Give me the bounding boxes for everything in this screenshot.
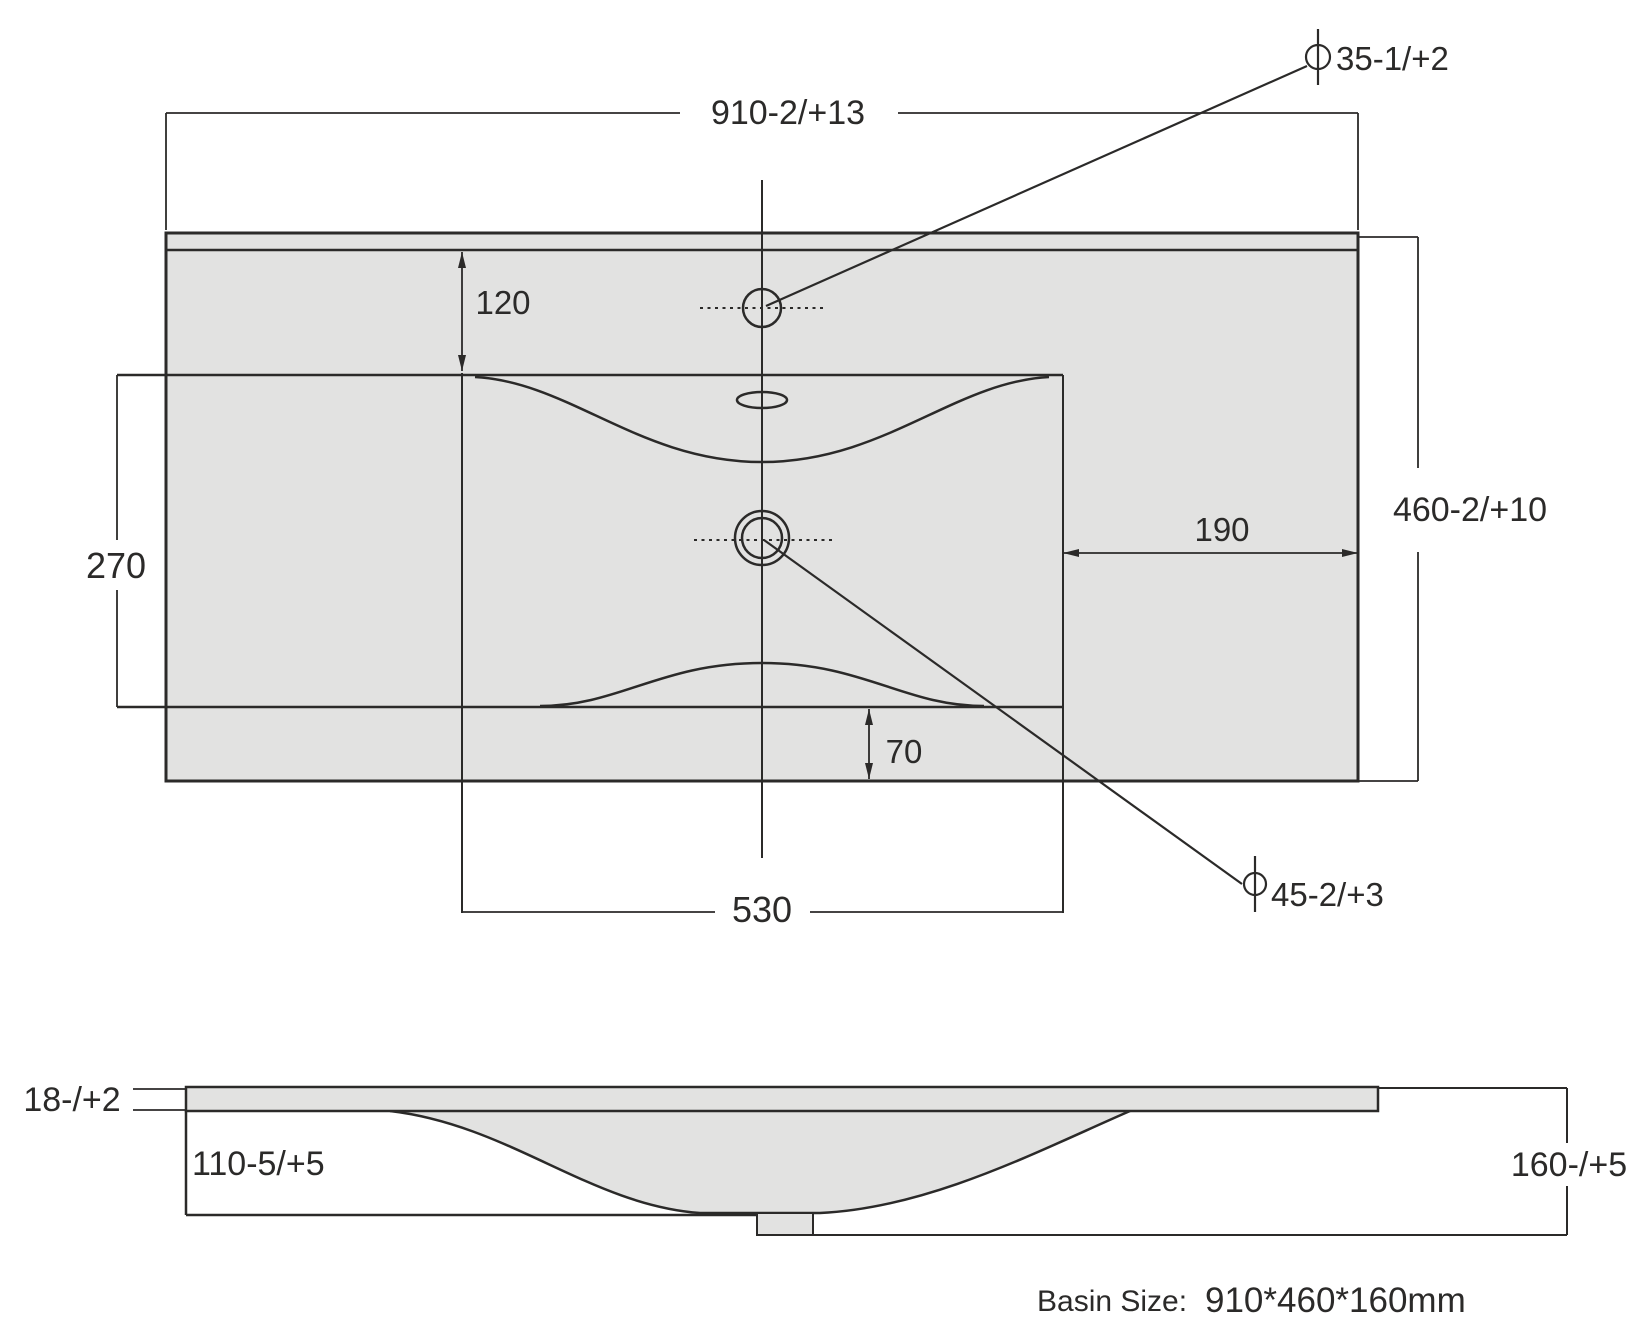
bottom-inset-label: 70 bbox=[886, 733, 923, 770]
drain-hole-label: 45-2/+3 bbox=[1271, 876, 1384, 913]
top-view bbox=[117, 180, 1358, 913]
faucet-hole-label: 35-1/+2 bbox=[1336, 40, 1449, 77]
diameter-symbol bbox=[1244, 856, 1266, 912]
dimension-overall-depth: 460-2/+10 bbox=[1358, 237, 1547, 781]
faucet-offset-label: 120 bbox=[475, 284, 530, 321]
bowl-section-fill bbox=[390, 1111, 1130, 1213]
drain-stub bbox=[757, 1213, 813, 1235]
dimension-bowl-depth: 270 bbox=[86, 375, 146, 707]
dimension-slab-thickness: 18-/+2 bbox=[23, 1081, 186, 1119]
dimension-bowl-width: 530 bbox=[462, 889, 1063, 930]
dimension-overall-height: 160-/+5 bbox=[1378, 1088, 1627, 1235]
side-view: 160-/+5 18-/+2 110-5/+5 bbox=[23, 1081, 1627, 1235]
caption-value: 910*460*160mm bbox=[1205, 1281, 1466, 1318]
caption-label: Basin Size: bbox=[1037, 1285, 1187, 1318]
right-inset-label: 190 bbox=[1194, 511, 1249, 548]
overall-depth-label: 460-2/+10 bbox=[1393, 491, 1547, 529]
slab-thickness-label: 18-/+2 bbox=[23, 1081, 120, 1119]
basin-technical-drawing-page: 910-2/+13 120 270 190 460-2/+10 70 530 bbox=[0, 0, 1647, 1318]
bowl-depth-label: 270 bbox=[86, 545, 146, 586]
diameter-symbol bbox=[1306, 29, 1330, 85]
caption: Basin Size: 910*460*160mm bbox=[1037, 1281, 1466, 1318]
technical-drawing-canvas: 910-2/+13 120 270 190 460-2/+10 70 530 bbox=[0, 0, 1647, 1318]
apron-height-label: 110-5/+5 bbox=[192, 1145, 325, 1183]
bowl-width-label: 530 bbox=[732, 889, 792, 930]
slab-section bbox=[186, 1087, 1378, 1111]
overall-width-label: 910-2/+13 bbox=[711, 94, 865, 132]
overall-height-label: 160-/+5 bbox=[1511, 1146, 1627, 1184]
